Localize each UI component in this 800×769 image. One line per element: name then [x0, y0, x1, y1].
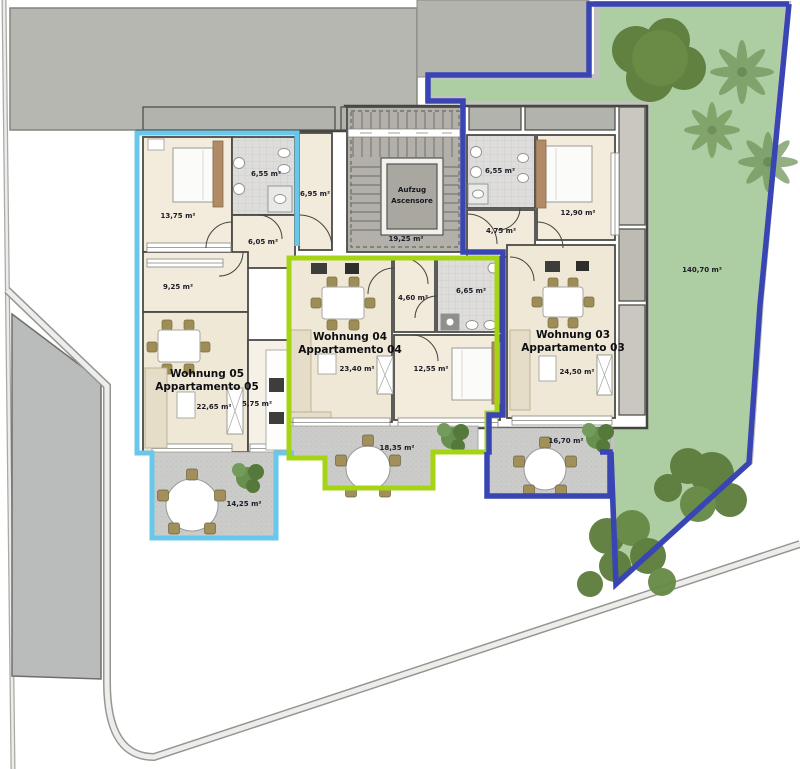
side-table-05: [177, 392, 195, 418]
corridor: 6,95 m²: [299, 133, 332, 250]
label-bedroom-05: 13,75 m²: [161, 212, 196, 220]
label-hall-05: 6,05 m²: [248, 238, 278, 246]
apartment-04-name-de: Wohnung 04: [313, 331, 387, 343]
label-bedroom-04: 12,55 m²: [414, 365, 449, 373]
apartment-03-name-it: Appartamento 03: [521, 342, 625, 354]
palm-tree-1: [710, 40, 774, 104]
wardrobe-symbol-04: [377, 356, 393, 394]
apartment-05-name-de: Wohnung 05: [170, 368, 244, 380]
building: Aufzug Ascensore 19,25 m² 6,95 m²: [137, 106, 647, 453]
nightstand: [148, 139, 164, 150]
apartment-05-name-it: Appartamento 05: [155, 381, 259, 393]
corridor-area-label: 6,95 m²: [300, 190, 330, 198]
adjacent-roof-area-2: [417, 0, 589, 77]
elevator-label-it: Ascensore: [391, 196, 433, 205]
bed-05: [173, 141, 223, 207]
label-bathroom-05: 6,55 m²: [251, 170, 281, 178]
terrace-03: 16,70 m²: [487, 423, 614, 496]
wardrobe-symbol-03: [597, 355, 612, 395]
floor-plan: 140,70 m²: [0, 0, 800, 769]
terrace-table: [524, 448, 566, 490]
elevator-label-de: Aufzug: [398, 185, 426, 194]
label-hall-04: 4,60 m²: [398, 294, 428, 302]
stairwell: Aufzug Ascensore 19,25 m²: [347, 107, 462, 252]
elevator: Aufzug Ascensore: [381, 158, 443, 235]
label-living-03: 24,50 m²: [560, 368, 595, 376]
palm-tree-2: [738, 132, 798, 192]
label-terrace-03: 16,70 m²: [549, 437, 584, 445]
label-bedroom-03: 12,90 m²: [561, 209, 596, 217]
apartment-03-name-de: Wohnung 03: [536, 329, 610, 341]
label-terrace-04: 18,35 m²: [380, 444, 415, 452]
stairwell-area-label: 19,25 m²: [389, 235, 424, 243]
terrace-05: 14,25 m²: [152, 452, 276, 538]
side-table-03: [539, 356, 556, 381]
label-study-05: 9,25 m²: [163, 283, 193, 291]
apartment-04: Wohnung 04 Appartamento 04 23,40 m² 4,60…: [289, 257, 502, 427]
label-bathroom-03: 6,55 m²: [485, 167, 515, 175]
label-kitchen-05: 5,75 m²: [242, 400, 272, 408]
sofa-04: [291, 330, 311, 412]
bed-03: [536, 140, 592, 208]
label-hall-03: 4,75 m²: [486, 227, 516, 235]
sofa-05: [145, 368, 167, 448]
label-living-04: 23,40 m²: [340, 365, 375, 373]
apartment-04-name-it: Appartamento 04: [298, 344, 402, 356]
palm-tree-3: [684, 102, 740, 158]
label-bathroom-04: 6,65 m²: [456, 287, 486, 295]
side-table-04: [318, 354, 336, 374]
label-living-05: 22,65 m²: [197, 403, 232, 411]
garden-area-label: 140,70 m²: [682, 266, 722, 274]
wardrobe-symbol-05: [227, 388, 243, 434]
terrace-table: [346, 446, 390, 490]
label-terrace-05: 14,25 m²: [227, 500, 262, 508]
